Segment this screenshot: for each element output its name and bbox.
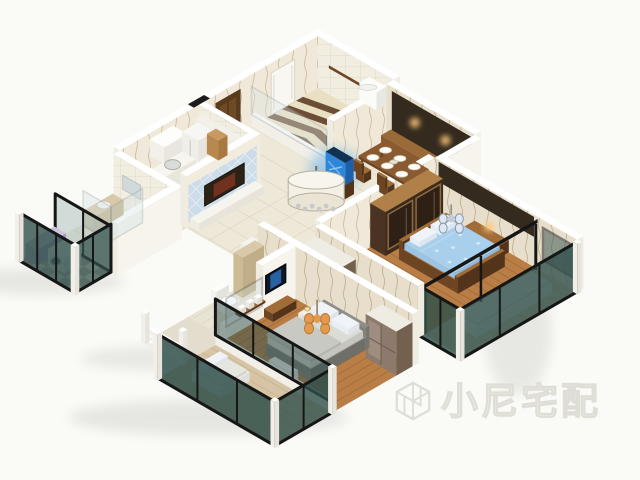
apartment-render-image: 小尼宅配 xyxy=(0,0,640,480)
floorplan-scene xyxy=(0,0,640,480)
